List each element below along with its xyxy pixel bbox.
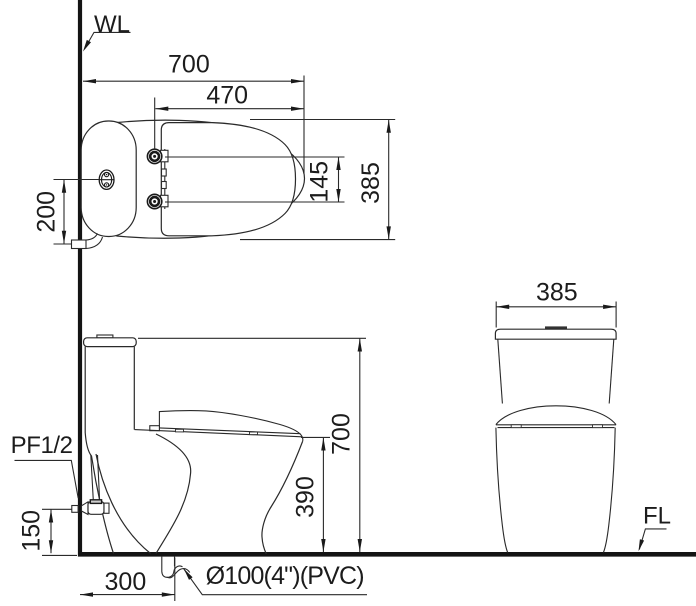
svg-text:300: 300	[105, 568, 147, 596]
svg-text:390: 390	[292, 476, 320, 518]
svg-text:700: 700	[168, 51, 210, 79]
svg-text:WL: WL	[94, 11, 130, 38]
svg-text:385: 385	[536, 279, 578, 307]
svg-text:Ø100(4")(PVC): Ø100(4")(PVC)	[206, 562, 364, 590]
svg-text:385: 385	[357, 162, 385, 204]
svg-text:200: 200	[32, 191, 60, 233]
svg-text:150: 150	[17, 510, 45, 552]
svg-text:FL: FL	[643, 503, 671, 530]
svg-text:470: 470	[206, 81, 248, 109]
svg-text:700: 700	[328, 413, 356, 455]
svg-text:PF1/2: PF1/2	[11, 432, 73, 459]
svg-text:145: 145	[305, 161, 333, 203]
